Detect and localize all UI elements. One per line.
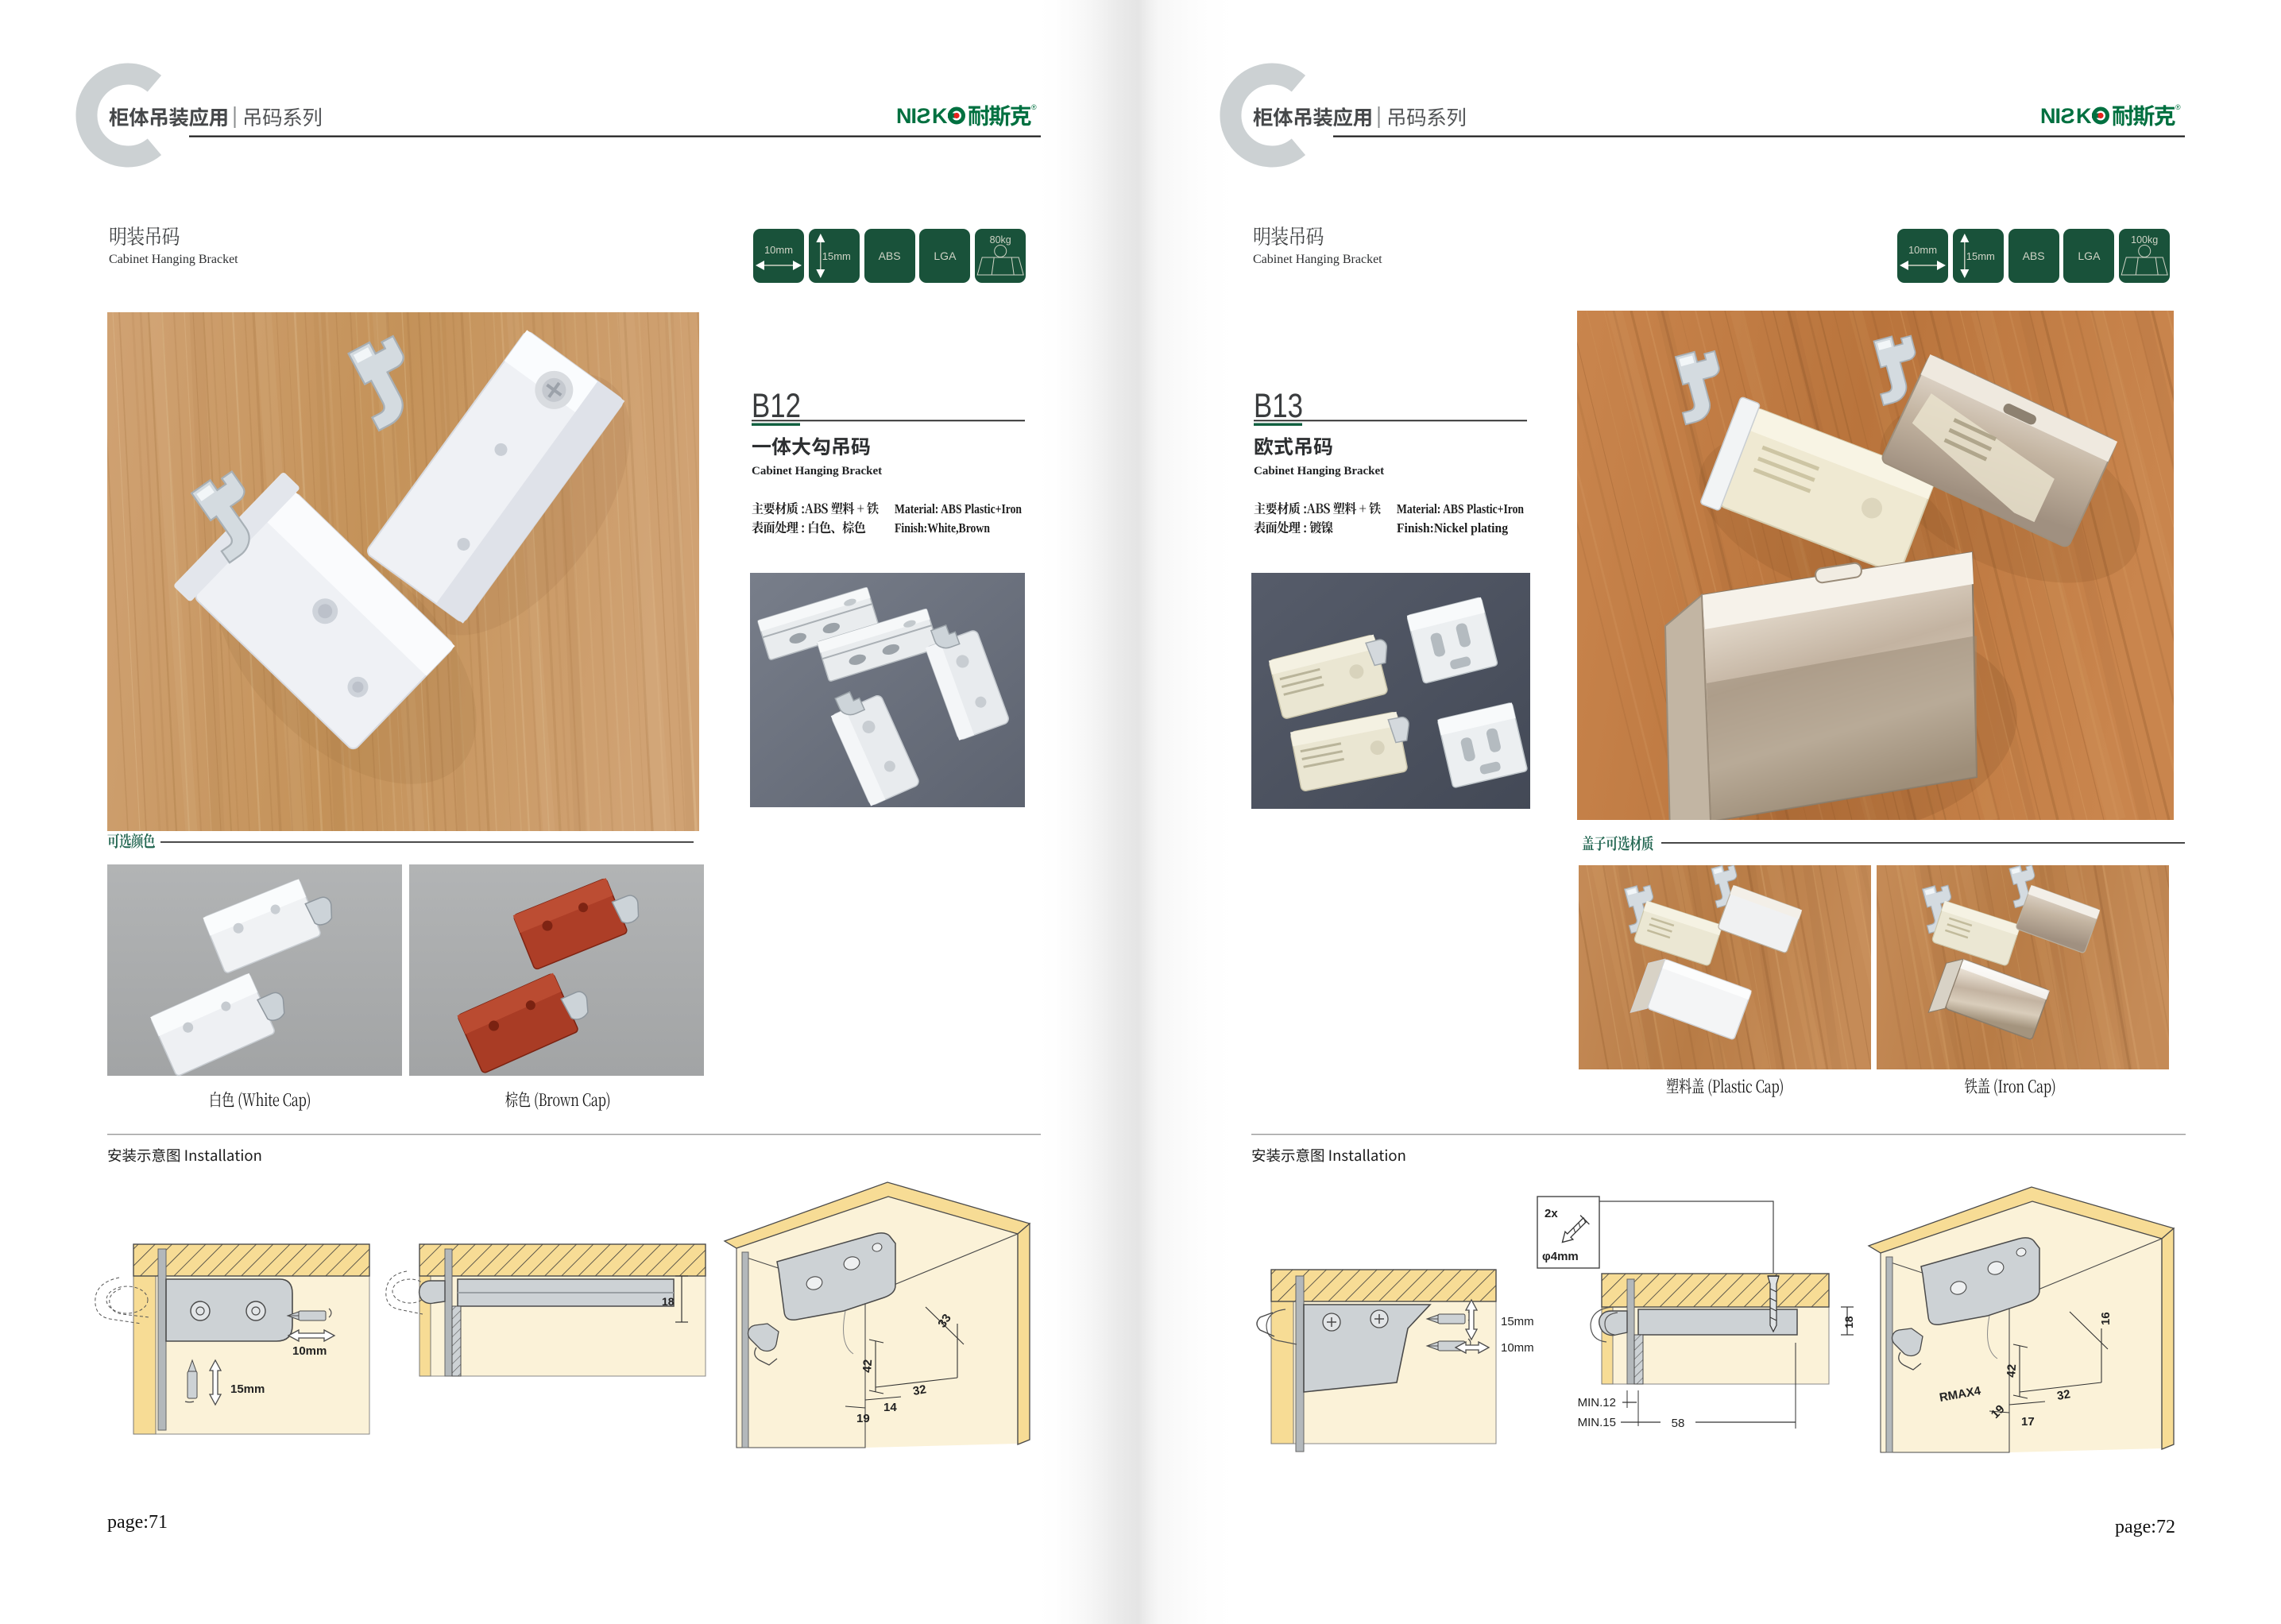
svg-text:10mm: 10mm [292, 1344, 327, 1358]
svg-text:Cabinet Hanging Bracket: Cabinet Hanging Bracket [1254, 465, 1384, 478]
svg-text:2x: 2x [1545, 1207, 1558, 1220]
svg-text:Finish:White,Brown: Finish:White,Brown [895, 520, 990, 536]
svg-text:K: K [2076, 104, 2092, 128]
svg-text:Material: ABS Plastic+Iron: Material: ABS Plastic+Iron [895, 501, 1022, 516]
svg-text:18: 18 [662, 1295, 675, 1308]
svg-text:LGA: LGA [2078, 249, 2101, 262]
svg-text:Material: ABS Plastic+Iron: Material: ABS Plastic+Iron [1397, 501, 1524, 516]
svg-text:Finish:Nickel plating: Finish:Nickel plating [1397, 520, 1508, 536]
svg-text:80kg: 80kg [990, 234, 1011, 246]
svg-text:ABS: ABS [879, 249, 901, 262]
svg-text:10mm: 10mm [764, 244, 793, 256]
svg-text:page:72: page:72 [2115, 1517, 2175, 1537]
svg-text:19: 19 [856, 1412, 870, 1425]
svg-text:S: S [2060, 104, 2074, 128]
svg-text:42: 42 [860, 1359, 875, 1373]
svg-text:NI: NI [896, 104, 916, 128]
svg-text:®: ® [1031, 103, 1037, 111]
svg-text:100kg: 100kg [2131, 234, 2158, 246]
svg-text:Cabinet Hanging Bracket: Cabinet Hanging Bracket [752, 465, 882, 478]
svg-text:32: 32 [2056, 1387, 2071, 1403]
svg-text:B13: B13 [1254, 387, 1303, 425]
svg-text:®: ® [2175, 103, 2181, 111]
svg-text:15mm: 15mm [1966, 250, 1995, 262]
svg-text:S: S [916, 104, 930, 128]
svg-text:NI: NI [2040, 104, 2060, 128]
svg-text:ABS: ABS [2023, 249, 2045, 262]
svg-text:16: 16 [2099, 1312, 2113, 1325]
svg-text:page:71: page:71 [107, 1512, 168, 1533]
svg-text:32: 32 [912, 1382, 927, 1398]
svg-text:15mm: 15mm [230, 1382, 265, 1396]
svg-text:42: 42 [2005, 1363, 2019, 1378]
svg-text:B12: B12 [752, 387, 801, 425]
svg-text:58: 58 [1672, 1417, 1685, 1430]
svg-text:15mm: 15mm [822, 250, 851, 262]
svg-text:17: 17 [2021, 1415, 2035, 1429]
svg-text:φ4mm: φ4mm [1542, 1250, 1579, 1263]
svg-text:15mm: 15mm [1501, 1315, 1534, 1328]
svg-text:MIN.12: MIN.12 [1578, 1396, 1616, 1409]
svg-text:Cabinet Hanging Bracket: Cabinet Hanging Bracket [1253, 253, 1382, 266]
svg-text:K: K [932, 104, 948, 128]
svg-text:LGA: LGA [934, 249, 957, 262]
svg-text:14: 14 [883, 1401, 897, 1414]
svg-text:18: 18 [1842, 1316, 1855, 1328]
svg-text:Cabinet Hanging Bracket: Cabinet Hanging Bracket [109, 253, 238, 266]
svg-text:10mm: 10mm [1501, 1341, 1534, 1355]
svg-text:10mm: 10mm [1908, 244, 1937, 256]
svg-text:MIN.15: MIN.15 [1578, 1416, 1616, 1429]
